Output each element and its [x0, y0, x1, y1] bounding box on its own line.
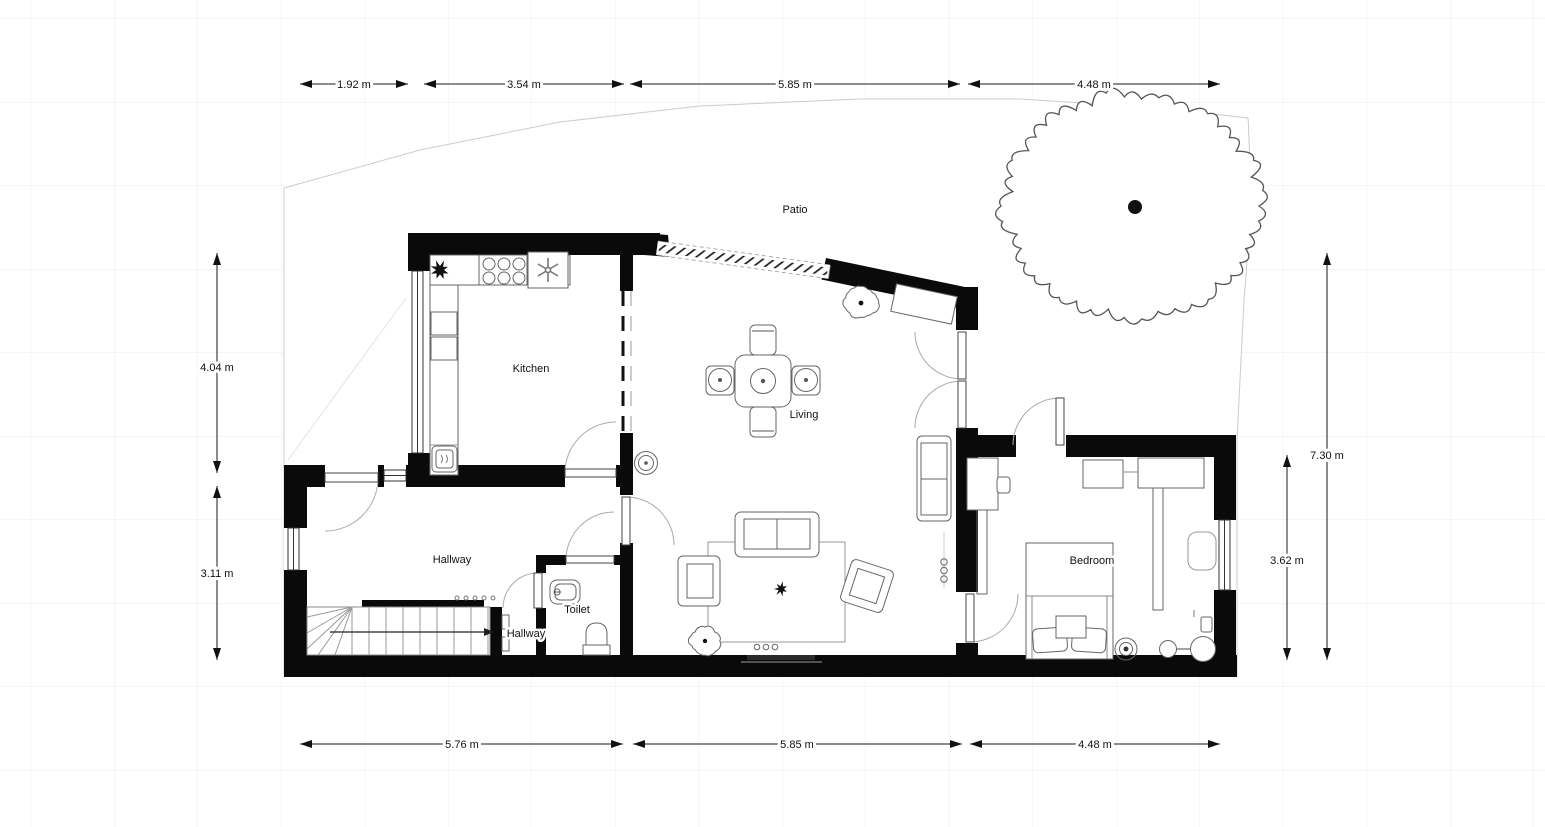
patio-label[interactable]: Patio [782, 204, 807, 216]
kitchen-window [408, 271, 430, 453]
patio-shrub-center [859, 301, 864, 306]
bedroom-window [1214, 520, 1236, 590]
dim-right-1: 7.30 m [1310, 450, 1344, 462]
dim-top-3: 5.85 m [778, 79, 812, 91]
dim-left-2: 3.11 m [201, 568, 234, 580]
oven[interactable] [432, 446, 457, 472]
kitchen-label[interactable]: Kitchen [513, 363, 550, 375]
dim-top-4: 4.48 m [1077, 79, 1111, 91]
dim-right-2: 3.62 m [1270, 555, 1304, 567]
bedroom-label[interactable]: Bedroom [1070, 555, 1115, 567]
dim-bottom-3: 4.48 m [1078, 739, 1112, 751]
dim-top-2: 3.54 m [507, 79, 541, 91]
wall-sofa[interactable] [917, 436, 951, 521]
living-plant-center [703, 639, 707, 643]
hallway-window [284, 528, 307, 570]
toilet-sink[interactable] [550, 580, 580, 604]
armchair-left[interactable] [678, 556, 720, 606]
living-label[interactable]: Living [790, 409, 819, 421]
tree-trunk [1128, 200, 1142, 214]
hallway-label[interactable]: Hallway [433, 554, 472, 566]
sofa[interactable] [735, 512, 819, 557]
entry-sidelight-window [384, 465, 406, 487]
dim-bottom-2: 5.85 m [780, 739, 814, 751]
floorplan-canvas: Kitchen Living Hallway Hallway Toilet Be… [0, 0, 1545, 827]
dim-top-1: 1.92 m [337, 79, 371, 91]
hallway2-label[interactable]: Hallway [507, 628, 546, 640]
dim-bottom-1: 5.76 m [445, 739, 479, 751]
open-partition[interactable] [620, 291, 634, 433]
extractor-fan[interactable] [528, 252, 568, 288]
dim-left-1: 4.04 m [200, 362, 234, 374]
stove[interactable] [479, 255, 527, 285]
toilet-label[interactable]: Toilet [564, 604, 590, 616]
toilet-wc[interactable] [583, 623, 610, 655]
